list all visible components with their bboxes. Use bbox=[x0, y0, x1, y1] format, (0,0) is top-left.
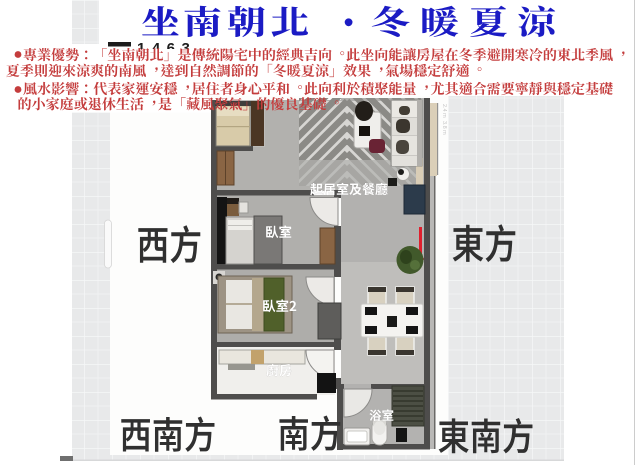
svg-text:2.4 m: 2.4 m bbox=[441, 104, 447, 118]
svg-text:3.8 m: 3.8 m bbox=[441, 121, 447, 135]
